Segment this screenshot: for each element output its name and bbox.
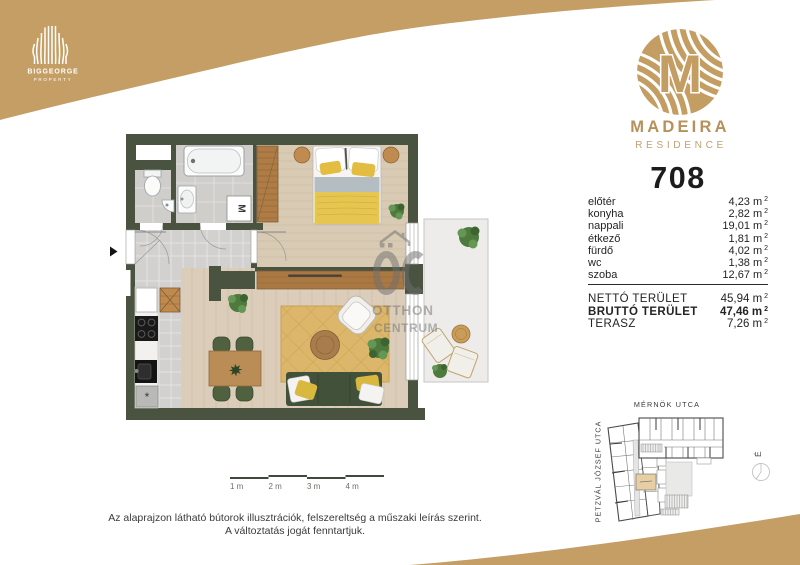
svg-text:M: M — [658, 45, 702, 104]
svg-text:RESIDENCE: RESIDENCE — [635, 140, 727, 149]
svg-text:É: É — [753, 451, 763, 457]
svg-text:*: * — [145, 390, 150, 404]
svg-text:4 m: 4 m — [346, 482, 360, 491]
svg-text:OTTHON: OTTHON — [372, 303, 434, 318]
svg-text:BIGGEORGE: BIGGEORGE — [27, 69, 78, 76]
svg-text:3 m: 3 m — [307, 482, 321, 491]
svg-text:1 m: 1 m — [230, 482, 244, 491]
svg-text:PROPERTY: PROPERTY — [34, 77, 73, 82]
svg-text:MADEIRA: MADEIRA — [630, 118, 729, 136]
svg-text:CENTRUM: CENTRUM — [374, 321, 438, 335]
svg-text:M: M — [236, 204, 247, 212]
svg-text:2 m: 2 m — [269, 482, 283, 491]
